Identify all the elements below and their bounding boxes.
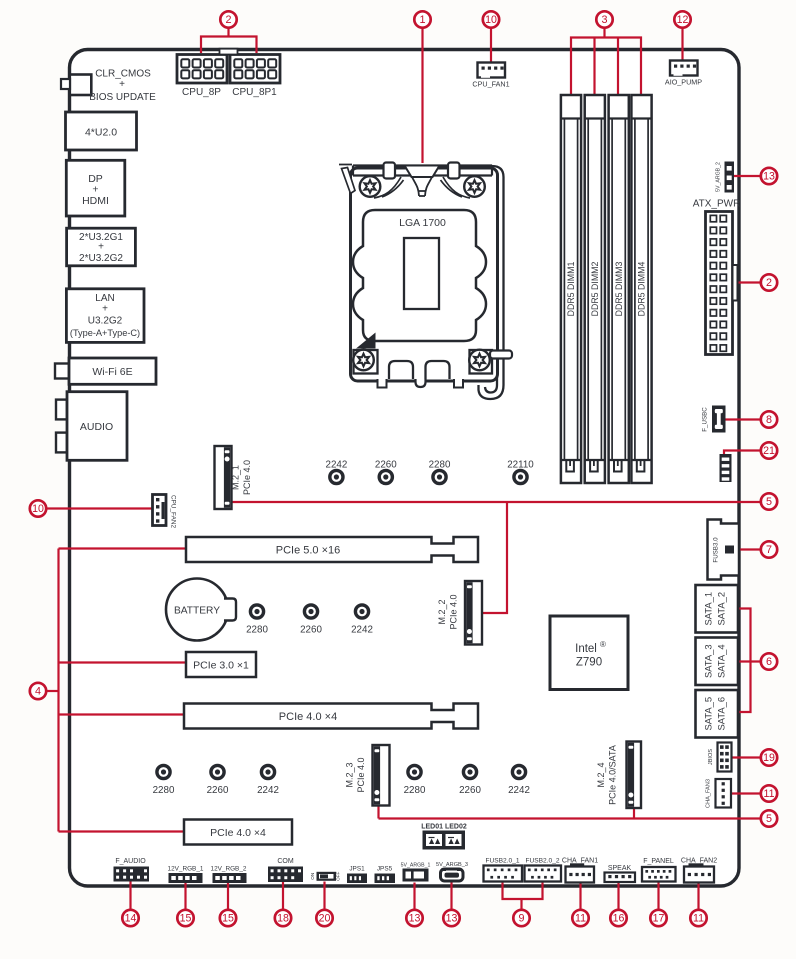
svg-text:CHA_FAN1: CHA_FAN1 xyxy=(562,858,598,865)
svg-text:3: 3 xyxy=(601,14,607,26)
svg-text:19: 19 xyxy=(763,752,775,764)
svg-text:SATA_2: SATA_2 xyxy=(716,592,727,626)
svg-text:6: 6 xyxy=(766,656,772,668)
svg-text:ATX_PWR: ATX_PWR xyxy=(693,199,741,210)
svg-text:FUSB2.0_1: FUSB2.0_1 xyxy=(485,858,519,865)
svg-text:15: 15 xyxy=(222,913,234,925)
svg-text:13: 13 xyxy=(763,171,775,183)
svg-text:OFF: OFF xyxy=(336,872,341,881)
svg-text:M.2_2: M.2_2 xyxy=(437,599,447,624)
svg-text:17: 17 xyxy=(653,913,665,925)
svg-text:DDR5 DIMM4: DDR5 DIMM4 xyxy=(637,262,647,317)
svg-text:CPU_8P1: CPU_8P1 xyxy=(232,87,277,98)
svg-text:JPS5: JPS5 xyxy=(377,866,393,873)
svg-text:FUSB2.0_2: FUSB2.0_2 xyxy=(525,858,559,865)
svg-text:10: 10 xyxy=(485,14,497,26)
svg-text:11: 11 xyxy=(764,788,775,800)
svg-text:PCIe 4.0 ×4: PCIe 4.0 ×4 xyxy=(210,827,266,839)
svg-text:13: 13 xyxy=(409,913,421,925)
svg-text:2*U3.2G2: 2*U3.2G2 xyxy=(79,253,123,264)
svg-text:10: 10 xyxy=(32,503,44,515)
svg-text:BATTERY: BATTERY xyxy=(174,606,220,617)
svg-text:2242: 2242 xyxy=(351,625,373,636)
svg-text:7: 7 xyxy=(766,544,772,556)
svg-text:SATA_5: SATA_5 xyxy=(703,697,714,731)
svg-text:DDR5 DIMM2: DDR5 DIMM2 xyxy=(590,262,600,317)
svg-text:5V_ARGB_2: 5V_ARGB_2 xyxy=(716,162,722,192)
svg-text:M.2_1: M.2_1 xyxy=(231,465,241,490)
svg-text:PCIe 3.0 ×1: PCIe 3.0 ×1 xyxy=(193,660,249,672)
svg-text:20: 20 xyxy=(319,913,331,925)
svg-text:2280: 2280 xyxy=(404,785,426,796)
svg-text:14: 14 xyxy=(125,913,137,925)
svg-text:2280: 2280 xyxy=(429,459,451,470)
svg-text:CHA_FAN3: CHA_FAN3 xyxy=(706,779,712,808)
svg-text:PCIe 4.0: PCIe 4.0 xyxy=(449,594,459,629)
svg-text:4*U2.0: 4*U2.0 xyxy=(85,127,117,139)
svg-text:SATA_1: SATA_1 xyxy=(703,592,714,626)
svg-text:M.2_4: M.2_4 xyxy=(596,762,606,787)
svg-text:U3.2G2: U3.2G2 xyxy=(88,316,123,327)
svg-text:CPU_FAN1: CPU_FAN1 xyxy=(472,80,509,89)
svg-text:LGA 1700: LGA 1700 xyxy=(399,217,446,229)
svg-text:AUDIO: AUDIO xyxy=(80,421,113,433)
svg-text:PCIe 4.0 ×4: PCIe 4.0 ×4 xyxy=(279,711,337,723)
svg-text:COM: COM xyxy=(277,858,294,865)
svg-text:15: 15 xyxy=(180,913,192,925)
svg-text:5V_ARGB_3: 5V_ARGB_3 xyxy=(436,862,468,868)
svg-text:+: + xyxy=(102,304,108,315)
svg-text:Wi-Fi 6E: Wi-Fi 6E xyxy=(92,366,132,378)
svg-text:2: 2 xyxy=(225,14,231,26)
svg-text:2242: 2242 xyxy=(326,459,348,470)
svg-text:+: + xyxy=(119,79,125,90)
svg-text:2260: 2260 xyxy=(300,625,322,636)
svg-text:12: 12 xyxy=(677,14,689,26)
svg-text:16: 16 xyxy=(613,913,625,925)
svg-text:F_USBC: F_USBC xyxy=(702,407,709,432)
svg-text:AIO_PUMP: AIO_PUMP xyxy=(665,78,702,87)
svg-text:11: 11 xyxy=(575,913,586,925)
svg-text:5: 5 xyxy=(766,813,772,825)
svg-text:ON: ON xyxy=(310,873,315,880)
svg-text:2260: 2260 xyxy=(459,785,481,796)
svg-text:2260: 2260 xyxy=(207,785,229,796)
svg-text:LAN: LAN xyxy=(95,293,114,304)
svg-text:CPU_FAN2: CPU_FAN2 xyxy=(170,495,177,528)
svg-text:8: 8 xyxy=(766,414,772,426)
svg-text:PCIe 5.0 ×16: PCIe 5.0 ×16 xyxy=(276,545,341,557)
svg-text:CLR_CMOS: CLR_CMOS xyxy=(95,69,151,80)
svg-text:FUSB3.0: FUSB3.0 xyxy=(713,537,720,563)
svg-text:JPS1: JPS1 xyxy=(349,866,365,873)
svg-text:+: + xyxy=(98,242,104,253)
svg-text:Intel: Intel xyxy=(575,643,597,655)
svg-text:18: 18 xyxy=(277,913,289,925)
svg-text:2: 2 xyxy=(766,277,772,289)
svg-text:2280: 2280 xyxy=(153,785,175,796)
svg-text:HDMI: HDMI xyxy=(82,195,109,207)
svg-text:SPEAK: SPEAK xyxy=(608,865,632,872)
svg-text:PCIe 4.0: PCIe 4.0 xyxy=(242,460,252,495)
svg-text:9: 9 xyxy=(518,913,524,925)
svg-text:®: ® xyxy=(600,640,606,649)
svg-text:F_PANEL: F_PANEL xyxy=(643,858,674,865)
svg-text:SATA_6: SATA_6 xyxy=(716,697,727,731)
svg-text:JBIOS: JBIOS xyxy=(708,749,714,765)
svg-text:(Type-A+Type-C): (Type-A+Type-C) xyxy=(70,328,140,338)
svg-text:12V_RGB_1: 12V_RGB_1 xyxy=(168,866,204,873)
svg-text:5: 5 xyxy=(766,496,772,508)
svg-text:SATA_4: SATA_4 xyxy=(716,644,727,678)
svg-text:LED01 LED02: LED01 LED02 xyxy=(421,824,467,831)
svg-text:DDR5 DIMM3: DDR5 DIMM3 xyxy=(614,262,624,317)
svg-text:22110: 22110 xyxy=(507,459,534,470)
svg-text:2242: 2242 xyxy=(508,785,530,796)
svg-text:2260: 2260 xyxy=(375,459,397,470)
svg-text:Z790: Z790 xyxy=(576,657,602,669)
svg-text:SATA_3: SATA_3 xyxy=(703,644,714,678)
svg-text:5V_ARGB_1: 5V_ARGB_1 xyxy=(401,863,431,869)
svg-text:1: 1 xyxy=(419,14,425,26)
svg-text:CHA_FAN2: CHA_FAN2 xyxy=(681,858,717,865)
svg-text:CPU_8P: CPU_8P xyxy=(182,87,221,98)
svg-text:2280: 2280 xyxy=(246,625,268,636)
svg-text:PCIe 4.0: PCIe 4.0 xyxy=(356,757,366,792)
svg-text:2242: 2242 xyxy=(257,785,279,796)
svg-text:F_AUDIO: F_AUDIO xyxy=(115,858,146,865)
svg-text:21: 21 xyxy=(763,445,775,457)
svg-text:DDR5 DIMM1: DDR5 DIMM1 xyxy=(566,262,576,317)
svg-text:BIOS UPDATE: BIOS UPDATE xyxy=(89,92,156,103)
svg-text:13: 13 xyxy=(446,913,458,925)
svg-text:12V_RGB_2: 12V_RGB_2 xyxy=(211,866,247,873)
svg-text:4: 4 xyxy=(35,686,41,698)
svg-text:+: + xyxy=(92,184,98,196)
svg-text:M.2_3: M.2_3 xyxy=(345,762,355,787)
svg-text:PCIe 4.0/SATA: PCIe 4.0/SATA xyxy=(608,745,618,805)
svg-text:11: 11 xyxy=(693,913,704,925)
